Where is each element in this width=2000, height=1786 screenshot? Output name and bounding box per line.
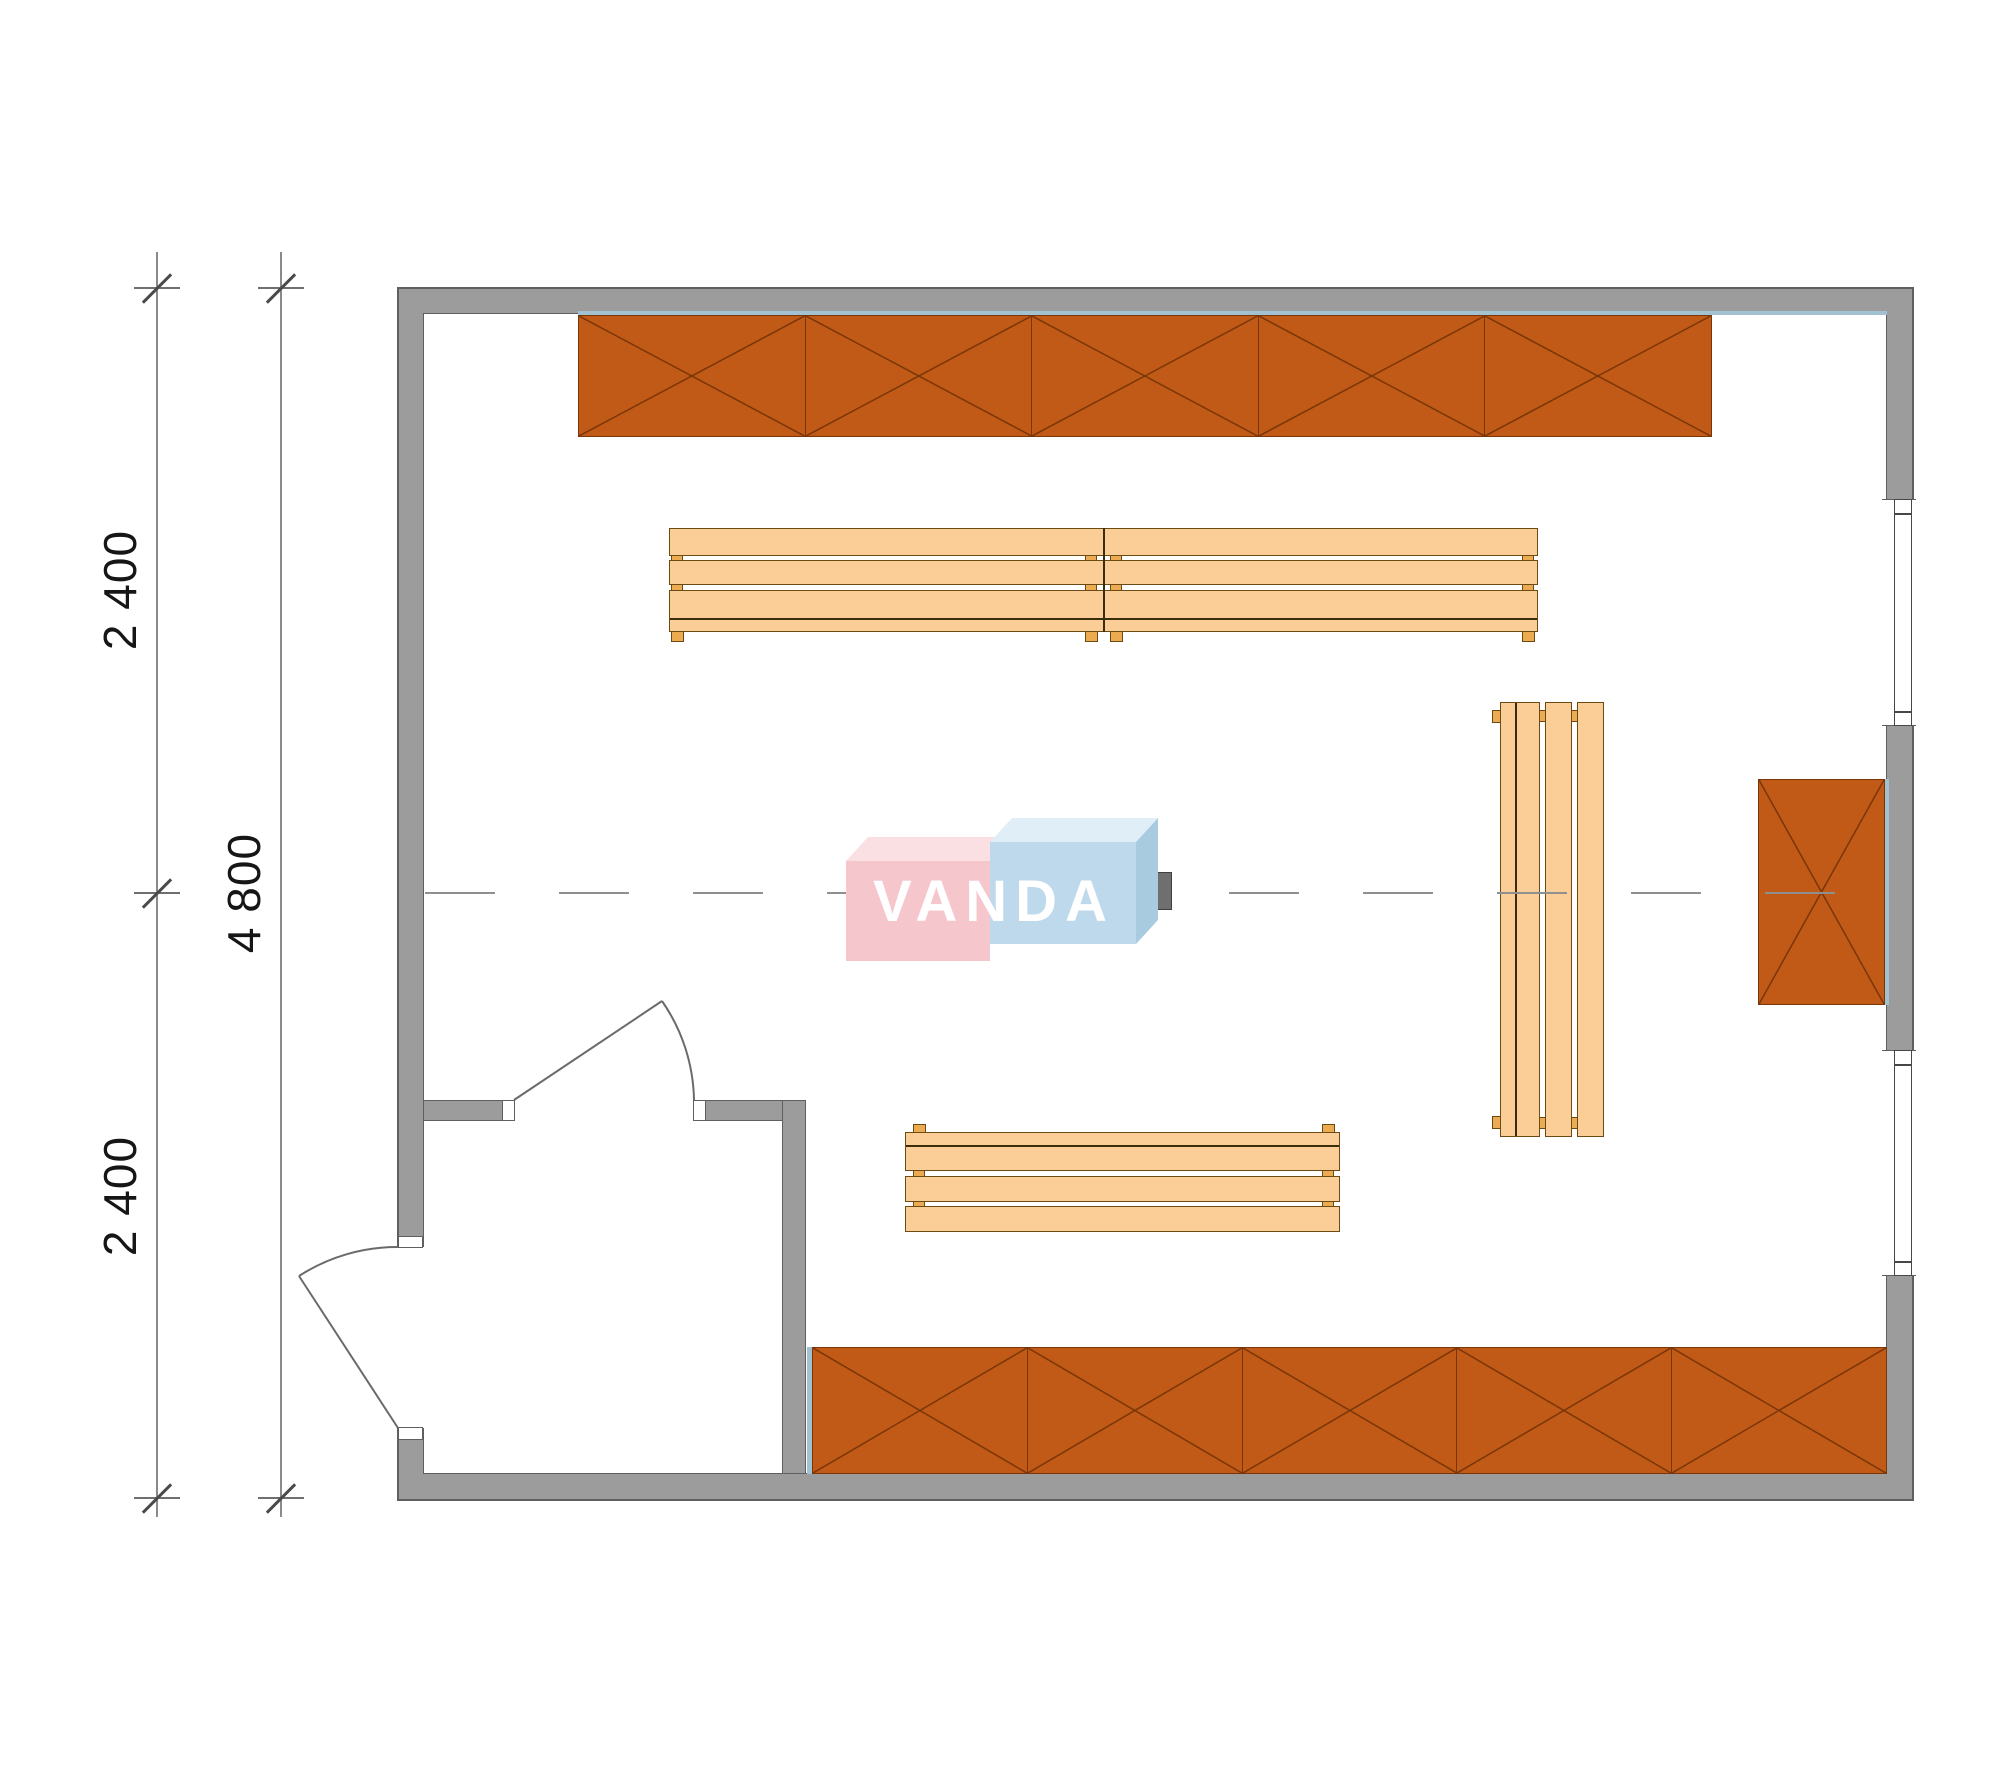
exterior-door-swing-arc xyxy=(299,1247,398,1276)
logo-pink-top-face xyxy=(846,837,1012,861)
logo-blue-top-face xyxy=(990,818,1158,842)
interior-door-leaf xyxy=(514,1001,662,1100)
logo-wordmark: VANDA xyxy=(844,868,1144,936)
interior-door-swing-arc xyxy=(662,1001,694,1100)
exterior-door-leaf xyxy=(299,1276,398,1428)
floor-plan-canvas: VANDA 2 400 2 400 4 800 xyxy=(0,0,2000,1786)
